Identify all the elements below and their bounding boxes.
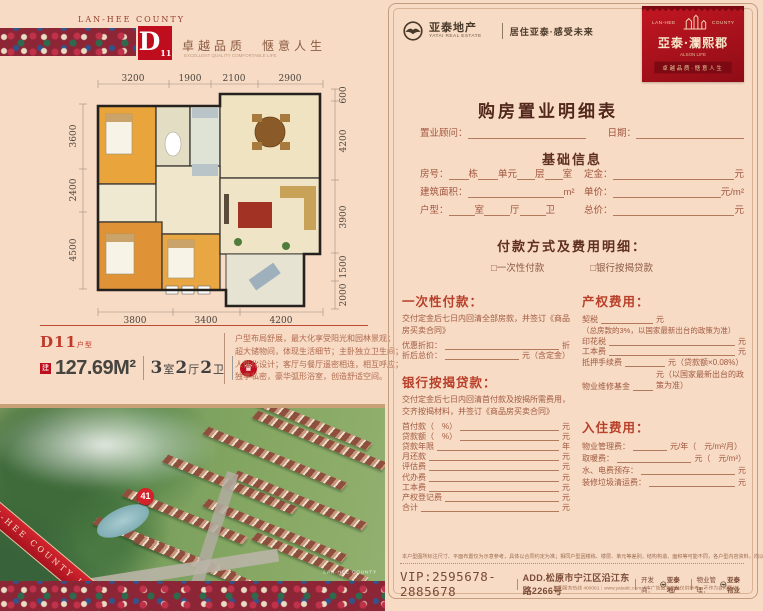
unit-dong: 栋 <box>469 166 479 180</box>
mortgage-fee-label: 抵押手续费 <box>582 359 622 367</box>
model-letter-badge: D11 <box>138 26 172 60</box>
disclaimer: 本户型图所标注尺寸、平面布置仅为示意参考，具体以合同约定为准；相同户型因楼栋、楼… <box>402 552 742 560</box>
unit-floor: 层 <box>535 166 545 180</box>
date-label: 日期： <box>608 125 637 139</box>
svg-text:3600: 3600 <box>69 124 79 147</box>
utilities-prepay-label: 水、电费预存： <box>582 467 638 475</box>
footer-subline: 集团服务热线 400081｜www.yataidc.com（本广告图文资料仅供参… <box>553 584 742 591</box>
logo-slogan: 居住亚泰·感受未来 <box>510 25 594 38</box>
loan-amount-label: 贷款额（ %） <box>402 433 457 441</box>
row-unit: 元 <box>738 348 746 356</box>
row-unit: 元 <box>562 504 570 512</box>
divider <box>502 23 503 39</box>
svg-text:4500: 4500 <box>69 238 79 261</box>
divider <box>517 579 518 590</box>
logo-name: 亚泰地产 <box>429 23 495 34</box>
area-unit: m² <box>564 187 575 198</box>
project-subname: ALSON LIFE <box>655 53 732 58</box>
discounted-total-unit: 元（含定金） <box>522 352 570 360</box>
registration-fee-label: 产权登记费 <box>402 494 442 502</box>
row-unit: 元 <box>562 433 570 441</box>
svg-text:3800: 3800 <box>124 316 147 324</box>
row-unit: 元 <box>562 494 570 502</box>
dotted-divider <box>400 563 744 564</box>
svg-text:4200: 4200 <box>270 316 293 324</box>
row-unit: 元（ 元/m²） <box>694 455 746 463</box>
stamp-tax-label: 印花税 <box>582 338 606 346</box>
deposit-label: 定金： <box>584 166 613 180</box>
unit-price-unit: 元/m² <box>721 184 744 198</box>
discount-unit: 折 <box>562 342 570 350</box>
svg-text:2100: 2100 <box>223 74 246 84</box>
vip-phone: VIP:2595678-2885678 <box>400 569 512 599</box>
section-payment-title: 付款方式及费用明细： <box>402 236 742 255</box>
occupancy-fees-heading: 入住费用： <box>582 417 746 436</box>
slogan-text-en: EXCELLENT QUALITY COMFORTABLE LIFE <box>184 54 276 59</box>
unit-price-row: 单价： 元/m² <box>584 184 744 198</box>
mist <box>0 404 220 490</box>
deposit-row: 定金： 元 <box>584 166 744 180</box>
right-fee-column: 产权费用： 契税元 （总房款的3%，以国家最新出台的政策为准） 印花税元 工本费… <box>582 291 746 487</box>
divider <box>143 356 144 380</box>
total-price-row: 总价： 元 <box>584 202 744 216</box>
mortgage-heading: 银行按揭贷款： <box>402 372 570 391</box>
row-unit: 元 <box>562 474 570 482</box>
left-fee-column: 一次性付款： 交付定金后七日内回清全部房款，并签订《商品房买卖合同》 优惠折扣：… <box>402 291 570 512</box>
castle-icon <box>681 14 707 31</box>
banner-zigzag <box>642 6 744 11</box>
svg-text:2900: 2900 <box>279 74 302 84</box>
row-unit: 元（以国家最新出台的政策为准） <box>656 369 746 391</box>
row-unit: 元 <box>738 467 746 475</box>
unit-ting: 厅 <box>510 202 520 216</box>
sum-label: 合计 <box>402 504 418 512</box>
divider-rule <box>40 325 368 326</box>
property-mgmt-label: 物业管理费： <box>582 443 630 451</box>
maintenance-fund-label: 物业维修基金 <box>582 383 630 391</box>
form-title: 购房置业明细表 <box>388 97 708 122</box>
svg-text:1900: 1900 <box>179 74 202 84</box>
photo-watermark: LAN-HEE COUNTY <box>323 570 377 575</box>
lump-sum-heading: 一次性付款： <box>402 291 570 310</box>
area-row: 建筑面积： m² <box>420 184 575 198</box>
banner-county-left: LAN-HEE <box>652 20 676 25</box>
room-layout: 3室 2厅 2卫 <box>151 358 226 378</box>
project-tagline: 卓越品质·惬意人生 <box>654 62 731 74</box>
deed-tax-note: （总房款的3%，以国家最新出台的政策为准） <box>582 325 746 336</box>
row-unit: 元（贷款额×0.08%） <box>668 359 743 367</box>
deposit-unit: 元 <box>734 166 744 180</box>
consultant-blank <box>468 129 586 139</box>
unit-room: 室 <box>563 166 573 180</box>
badge-letter: D <box>139 27 161 56</box>
project-name: 亞泰·瀾熙郡 <box>642 34 744 51</box>
debris-removal-label: 装修垃圾清运费： <box>582 479 646 487</box>
badge-sub: 11 <box>160 48 171 58</box>
work-fee2-label: 工本费 <box>582 348 606 356</box>
deed-tax-label: 契税 <box>582 316 598 324</box>
discount-label: 优惠折扣： <box>402 342 442 350</box>
floral-band-bottom <box>0 581 385 611</box>
option-lump-sum: □一次性付款 <box>491 260 544 274</box>
consultant-label: 置业顾问： <box>420 125 468 139</box>
discounted-total-label: 折后总价： <box>402 352 442 360</box>
loan-term-label: 贷款年限 <box>402 443 434 451</box>
row-unit: 元 <box>562 423 570 431</box>
payment-options: □一次性付款 □银行按揭贷款 <box>402 260 742 274</box>
floor-plan: 3200 1900 2100 2900 3800 3400 4200 3600 … <box>28 74 358 324</box>
down-payment-label: 首付款（ %） <box>402 423 457 431</box>
unit-description: 户型布局舒展，最大化享受阳光和园林景观； 超大储物间，体现生活细节；主卧独立卫生… <box>224 333 403 384</box>
monthly-payment-label: 月还款 <box>402 453 426 461</box>
area-tag: 建 <box>40 363 51 374</box>
project-banner: LAN-HEE COUNTY 亞泰·瀾熙郡 ALSON LIFE 卓越品质·惬意… <box>642 6 744 82</box>
area-label: 建筑面积： <box>420 184 468 198</box>
row-unit: 元/年（ 元/m²/月） <box>670 443 742 451</box>
floral-band-top <box>0 28 136 56</box>
slogan-text: 卓越品质 惬意人生 <box>182 37 326 54</box>
row-unit: 元 <box>738 479 746 487</box>
room-number-row: 房号： 栋 单元 层 室 <box>420 166 572 180</box>
svg-text:3400: 3400 <box>195 316 218 324</box>
mortgage-desc: 交付定金后七日内回清首付款及按揭所需费用，交齐按揭材料，并签订《商品房买卖合同》 <box>402 394 570 417</box>
agency-fee-label: 代办费 <box>402 474 426 482</box>
consultant-row: 置业顾问： 日期： <box>420 125 744 139</box>
developer-logo: 亚泰地产 YATAI REAL ESTATE 居住亚泰·感受未来 <box>402 20 594 42</box>
row-unit: 元 <box>738 338 746 346</box>
purchase-form-panel: 亚泰地产 YATAI REAL ESTATE 居住亚泰·感受未来 LAN-HEE… <box>388 3 756 597</box>
svg-text:4200: 4200 <box>339 129 349 152</box>
row-unit: 元 <box>562 453 570 461</box>
property-fees-heading: 产权费用： <box>582 291 746 310</box>
svg-text:2000: 2000 <box>339 283 349 306</box>
heating-fee-label: 取暖费： <box>582 455 614 463</box>
building-marker-41: 41 <box>137 488 154 505</box>
logo-name-en: YATAI REAL ESTATE <box>429 34 482 39</box>
banner-county-right: COUNTY <box>711 20 734 25</box>
model-name: D11户型 <box>40 333 218 351</box>
row-unit: 年 <box>562 443 570 451</box>
unit-spec: D11户型 建 127.69M² 3室 2厅 2卫 ♛ 户型布局舒展，最大化享受… <box>40 333 372 384</box>
date-blank <box>636 129 744 139</box>
svg-text:3200: 3200 <box>122 74 145 84</box>
unit-price-label: 单价： <box>584 184 613 198</box>
row-unit: 元 <box>562 463 570 471</box>
room-label: 房号： <box>420 166 449 180</box>
row-unit: 元 <box>656 316 664 324</box>
aerial-rendering: 41 LAN-HEE COUNTY LAN-HEE COUNTY LAN-HEE… <box>0 404 385 611</box>
county-wordmark: LAN-HEE COUNTY <box>78 15 185 24</box>
layout-label: 户型： <box>420 202 449 216</box>
unit-area: 127.69M² <box>55 357 136 380</box>
total-label: 总价： <box>584 202 613 216</box>
work-fee-label: 工本费 <box>402 484 426 492</box>
svg-text:2400: 2400 <box>69 178 79 201</box>
svg-text:600: 600 <box>339 86 349 103</box>
eagle-icon <box>402 20 424 42</box>
unit-wei: 卫 <box>546 202 556 216</box>
appraisal-fee-label: 评估费 <box>402 463 426 471</box>
svg-text:1500: 1500 <box>339 255 349 278</box>
layout-row: 户型： 室 厅 卫 <box>420 202 555 216</box>
row-unit: 元 <box>562 484 570 492</box>
option-mortgage: □银行按揭贷款 <box>590 260 653 274</box>
lump-sum-desc: 交付定金后七日内回清全部房款，并签订《商品房买卖合同》 <box>402 313 570 336</box>
unit-shi: 室 <box>475 202 485 216</box>
svg-text:3900: 3900 <box>339 205 349 228</box>
total-unit: 元 <box>734 202 744 216</box>
unit-danyuan: 单元 <box>498 166 517 180</box>
